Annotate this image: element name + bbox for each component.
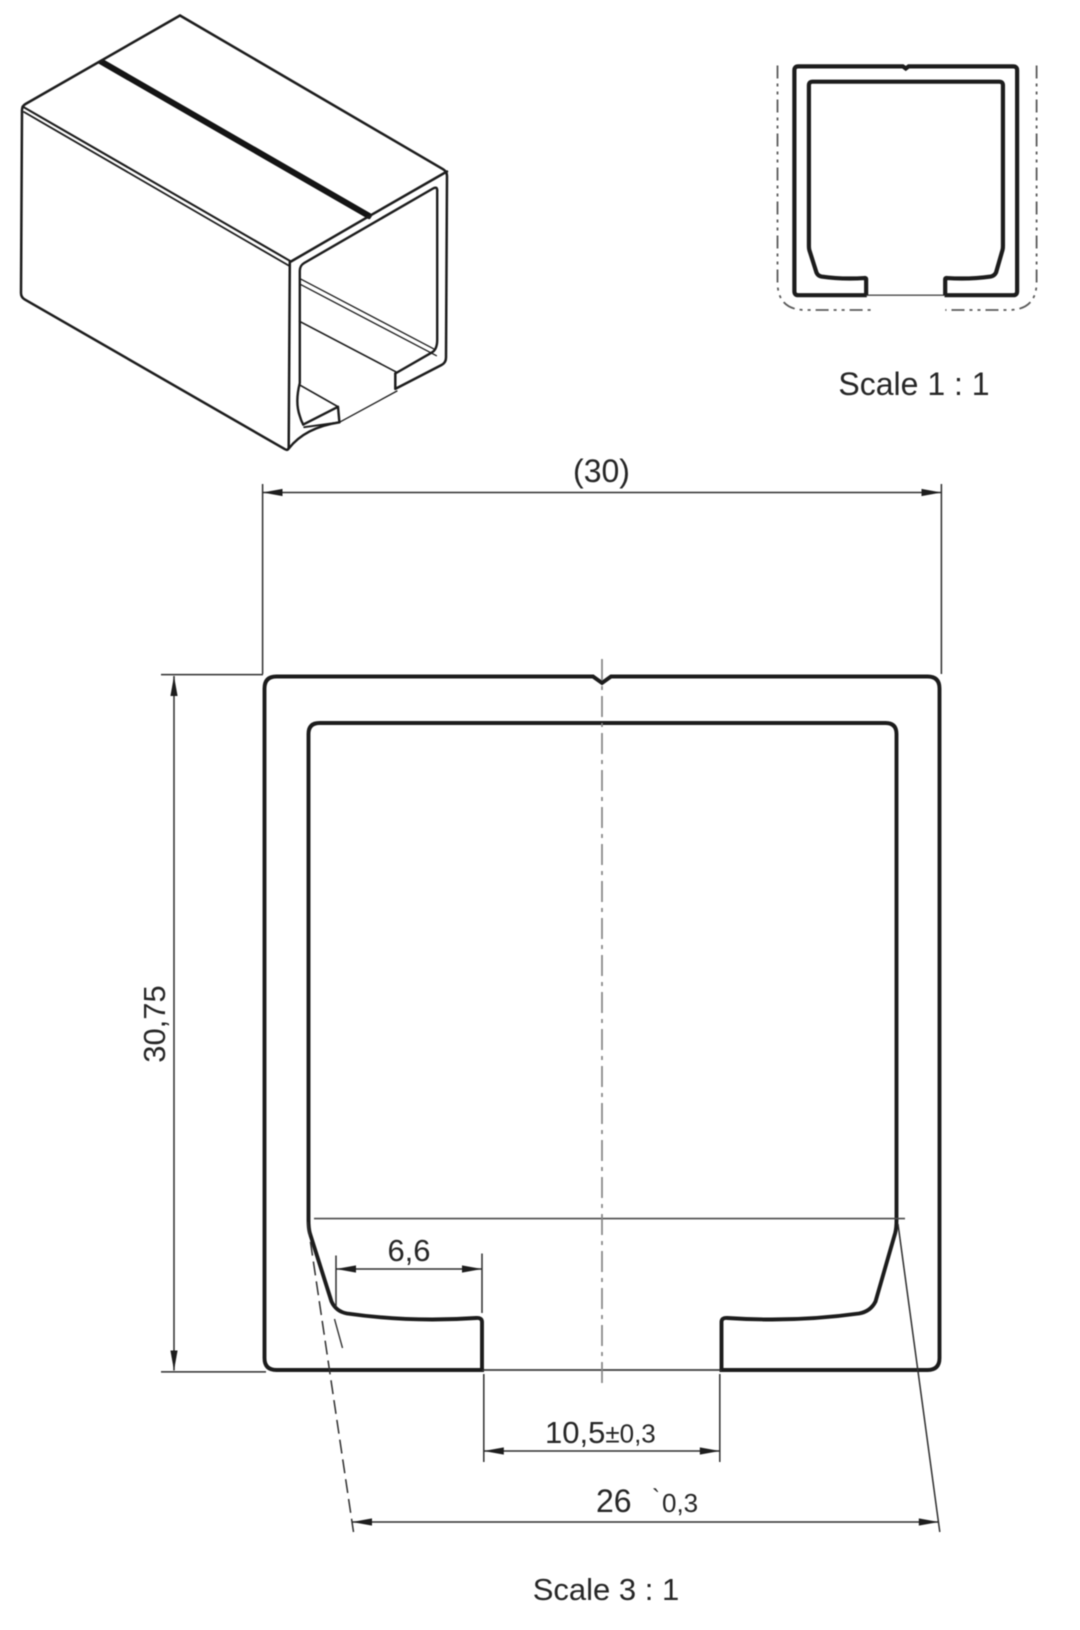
svg-text:(30): (30)	[573, 453, 630, 489]
svg-text:0,3: 0,3	[662, 1488, 698, 1518]
svg-text:30,75: 30,75	[137, 985, 172, 1063]
svg-text:6,6: 6,6	[387, 1233, 430, 1268]
svg-text:26: 26	[596, 1483, 632, 1519]
svg-text:10,5±0,3: 10,5±0,3	[545, 1415, 656, 1450]
svg-text:Scale 3 : 1: Scale 3 : 1	[533, 1572, 679, 1607]
svg-text:`: `	[652, 1485, 660, 1512]
svg-text:Scale 1 : 1: Scale 1 : 1	[838, 366, 989, 402]
